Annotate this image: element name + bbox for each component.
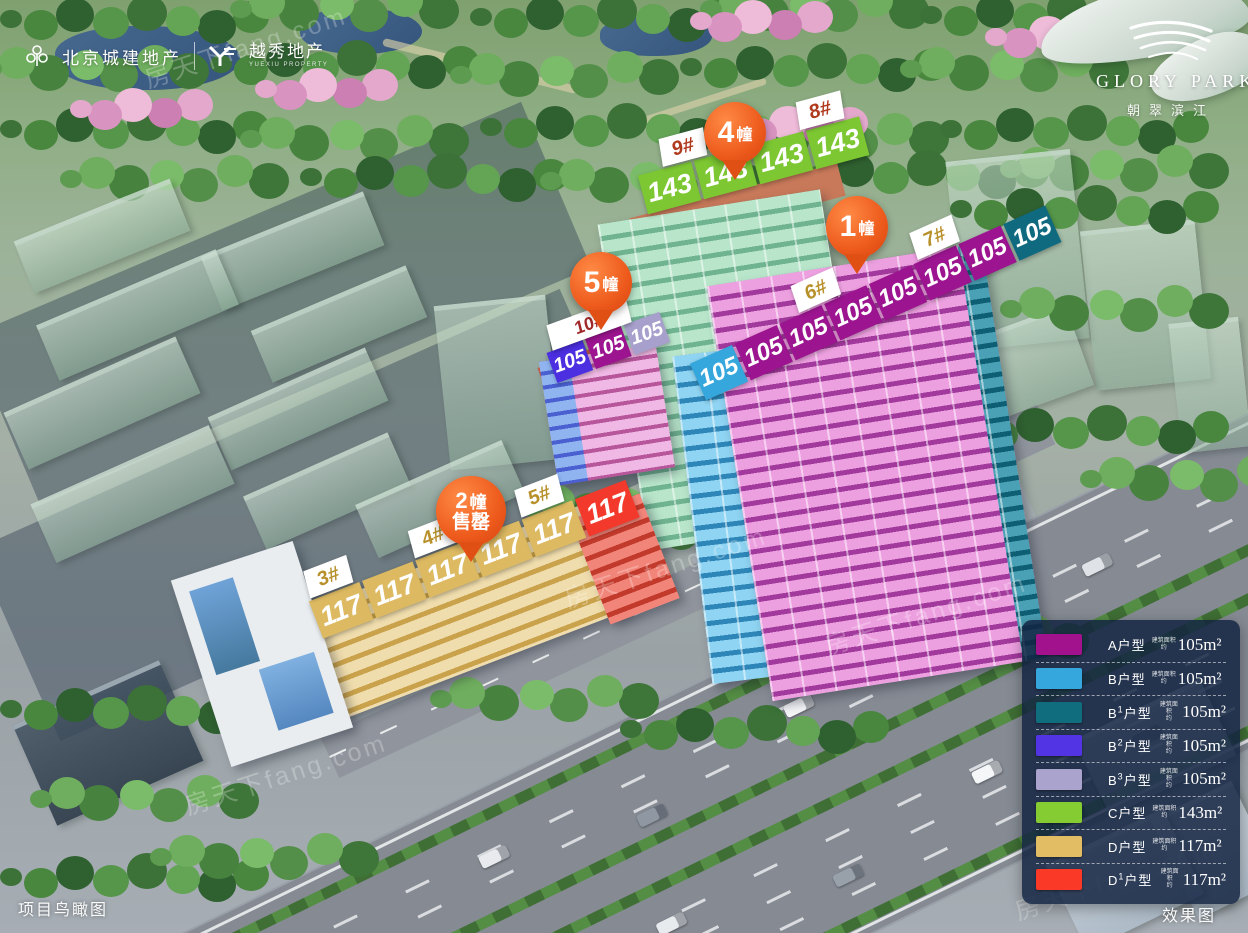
car: [478, 844, 511, 869]
car: [971, 760, 1004, 785]
pin-suffix: 幢: [736, 121, 752, 145]
tree-cluster: [0, 868, 22, 886]
legend-color-swatch: [1036, 735, 1082, 756]
park-path: [382, 38, 578, 94]
unit-type-label: C户型: [1108, 803, 1146, 822]
legend-row: B2户型 建筑面积约 105m²: [1036, 729, 1226, 763]
tree-cluster: [900, 60, 922, 78]
pin-number: 2: [455, 489, 467, 512]
area-note: 建筑面积约: [1152, 672, 1176, 686]
unit-area-value: 105m²: [1182, 702, 1226, 722]
tree-cluster: [950, 200, 972, 218]
ghost-building: [1168, 317, 1248, 454]
unit-area-value: 143m²: [1178, 803, 1222, 823]
legend-row: B户型 建筑面积约 105m²: [1036, 662, 1226, 696]
unit-area-value: 117m²: [1183, 870, 1226, 890]
developer-name: 北京城建地产: [62, 44, 182, 69]
legend-color-swatch: [1036, 836, 1082, 857]
blossom-cluster: [70, 100, 92, 118]
tree-cluster: [480, 118, 502, 136]
project-name-cn: 朝翠滨江: [1096, 100, 1246, 119]
project-name-en: GLORY PARK: [1096, 71, 1246, 92]
developer-logos: 北京城建地产 越秀地产 YUEXIU PROPERTY: [24, 42, 328, 70]
tree-cluster: [0, 10, 22, 28]
area-note: 建筑面积约: [1158, 869, 1180, 890]
area-note: 建筑面积约: [1158, 702, 1180, 723]
tree-cluster: [300, 168, 322, 186]
area-note: 建筑面积约: [1152, 638, 1176, 652]
pin-number: 4: [718, 116, 735, 150]
pin-suffix: 幢: [602, 271, 618, 295]
tree-cluster: [0, 700, 22, 718]
area-note: 建筑面积约: [1152, 839, 1176, 853]
unit-area-value: 105m²: [1178, 635, 1222, 655]
tree-cluster: [620, 720, 642, 738]
unit-type-label: D1户型: [1108, 870, 1152, 889]
unit-type-label: B2户型: [1108, 736, 1152, 755]
tree-cluster: [150, 848, 172, 866]
legend-row: B1户型 建筑面积约 105m²: [1036, 695, 1226, 729]
unit-type-label: D户型: [1108, 837, 1146, 856]
blossom-cluster: [690, 12, 712, 30]
unit-area-value: 105m²: [1178, 669, 1222, 689]
legend-color-swatch: [1036, 668, 1082, 689]
tree-cluster: [680, 58, 702, 76]
building-5-pin: 5幢: [570, 252, 632, 314]
area-note: 建筑面积约: [1158, 769, 1180, 790]
pin-number: 5: [584, 266, 601, 300]
unit-area-value: 117m²: [1178, 836, 1221, 856]
tree-cluster: [30, 790, 52, 808]
legend-row: D户型 建筑面积约 117m²: [1036, 829, 1226, 863]
blossom-cluster: [255, 80, 277, 98]
tree-cluster: [1080, 470, 1102, 488]
legend-color-swatch: [1036, 634, 1082, 655]
car: [1081, 552, 1114, 577]
tree-cluster: [430, 690, 452, 708]
caption-birdseye: 项目鸟瞰图: [18, 896, 108, 920]
building-1-pin: 1幢: [826, 196, 888, 258]
building-4-pin: 4幢: [704, 102, 766, 164]
pin-number: 1: [840, 210, 857, 244]
tree-cluster: [470, 8, 492, 26]
unit-area-value: 105m²: [1182, 769, 1226, 789]
tree-cluster: [450, 66, 472, 84]
unit-type-label: A户型: [1108, 635, 1146, 654]
legend-color-swatch: [1036, 869, 1082, 890]
tree-cluster: [940, 120, 962, 138]
legend-row: B3户型 建筑面积约 105m²: [1036, 762, 1226, 796]
tree-cluster: [920, 6, 942, 24]
legend-color-swatch: [1036, 702, 1082, 723]
unit-type-label: B3户型: [1108, 770, 1152, 789]
legend-row: A户型 建筑面积约 105m²: [1036, 628, 1226, 662]
tree-cluster: [230, 0, 252, 18]
glory-park-wave-icon: [1123, 18, 1219, 64]
aerial-rendering-scene: 9# 8# 143143143143 6# 7# 105105105105105…: [0, 0, 1248, 933]
pin-line1: 2幢: [455, 489, 486, 512]
logo-divider: [194, 42, 195, 70]
tree-cluster: [60, 170, 82, 188]
yuexiu-logo-icon: [207, 44, 237, 68]
pin-suffix: 幢: [470, 494, 487, 512]
pin-suffix: 幢: [858, 215, 874, 239]
unit-area-value: 105m²: [1182, 736, 1226, 756]
developer-name: 越秀地产: [249, 43, 328, 62]
tree-cluster: [240, 130, 262, 148]
caption-rendering: 效果图: [1162, 902, 1216, 926]
sold-out-label: 售罄: [452, 513, 490, 533]
yuexiu-wordmark: 越秀地产 YUEXIU PROPERTY: [249, 43, 328, 68]
blossom-cluster: [985, 28, 1007, 46]
unit-type-legend: A户型 建筑面积约 105m² B户型 建筑面积约 105m² B1户型 建筑面…: [1022, 620, 1240, 904]
legend-color-swatch: [1036, 769, 1082, 790]
building-2-sold-out-pin: 2幢 售罄: [436, 476, 506, 546]
tree-cluster: [1000, 300, 1022, 318]
tree-cluster: [0, 120, 22, 138]
bucc-logo-icon: [24, 43, 50, 69]
area-note: 建筑面积约: [1152, 806, 1176, 820]
developer-name-en: YUEXIU PROPERTY: [249, 62, 328, 69]
unit-type-label: B1户型: [1108, 703, 1152, 722]
project-logo: GLORY PARK 朝翠滨江: [1096, 18, 1246, 119]
unit-type-label: B户型: [1108, 669, 1146, 688]
legend-row: C户型 建筑面积约 143m²: [1036, 796, 1226, 830]
tree-cluster: [0, 60, 2, 78]
tree-cluster: [540, 172, 562, 190]
area-note: 建筑面积约: [1158, 735, 1180, 756]
legend-color-swatch: [1036, 802, 1082, 823]
legend-row: D1户型 建筑面积约 117m²: [1036, 863, 1226, 897]
